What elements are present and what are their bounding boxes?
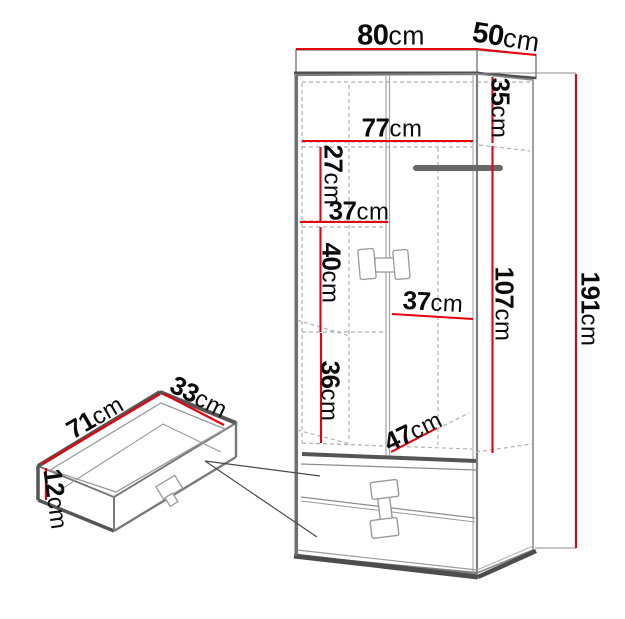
furniture-dimension-diagram: 80cm 50cm 35cm 77cm 27cm 37cm 40cm 37cm …	[0, 0, 625, 619]
dim-value: 77	[362, 113, 390, 143]
dim-unit: cm	[41, 495, 72, 531]
drawer-handle	[370, 479, 399, 538]
dim-value: 191	[575, 272, 605, 314]
dim-label-shelf-40: 40cm	[318, 243, 345, 304]
dim-label-left-width-37: 37cm	[329, 198, 390, 225]
dim-unit: cm	[575, 314, 602, 347]
dim-label-height-191: 191cm	[577, 272, 604, 347]
dim-unit: cm	[357, 199, 390, 226]
dim-value: 80	[357, 20, 388, 52]
dim-label-shelf-36: 36cm	[317, 361, 344, 422]
dim-unit: cm	[430, 289, 464, 318]
dim-unit: cm	[501, 22, 542, 57]
dim-value: 37	[402, 285, 431, 316]
callout-lines	[205, 461, 320, 537]
dim-unit: cm	[485, 106, 512, 139]
dim-value: 12	[37, 467, 71, 499]
dim-unit: cm	[315, 389, 342, 422]
dim-label-right-width-37: 37cm	[402, 287, 464, 317]
dim-label-width-80: 80cm	[357, 22, 425, 51]
dim-value: 36	[315, 361, 345, 389]
dim-label-drawer-height-12: 12cm	[38, 467, 73, 531]
dim-label-hanging-107: 107cm	[491, 267, 518, 342]
diagram-canvas	[0, 0, 625, 619]
dim-unit: cm	[316, 271, 343, 304]
dim-value: 35	[485, 78, 515, 106]
dim-unit: cm	[489, 309, 516, 342]
dim-value: 107	[489, 267, 519, 309]
dim-unit: cm	[388, 21, 425, 51]
drawer-fronts	[297, 454, 533, 570]
dim-value: 37	[329, 196, 357, 226]
hanging-rail	[413, 165, 503, 171]
dim-label-top-section-35: 35cm	[487, 78, 514, 139]
dim-label-interior-77: 77cm	[362, 115, 423, 142]
dim-unit: cm	[390, 116, 423, 143]
door-handles	[358, 248, 410, 279]
dim-value: 40	[316, 243, 346, 271]
dim-value: 27	[318, 145, 348, 173]
